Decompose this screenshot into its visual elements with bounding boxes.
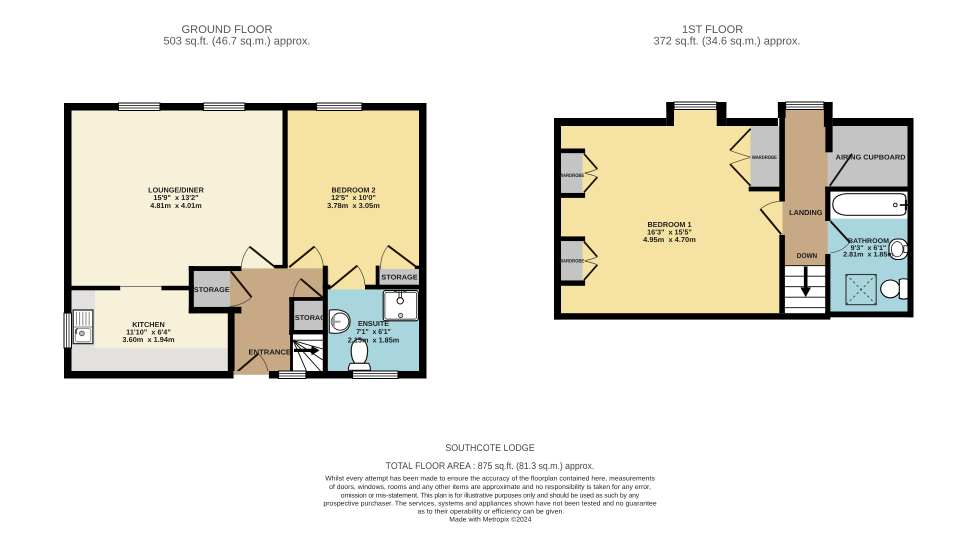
svg-text:AIRING CUPBOARD: AIRING CUPBOARD xyxy=(836,155,906,162)
svg-text:omission or mis-statement. Thi: omission or mis-statement. This plan is … xyxy=(341,492,640,499)
svg-text:LANDING: LANDING xyxy=(789,208,823,217)
svg-text:prospective purchaser. The ser: prospective purchaser. The services, sys… xyxy=(323,501,657,508)
svg-text:4.95m x 4.70m: 4.95m x 4.70m xyxy=(643,235,696,244)
svg-text:DOWN: DOWN xyxy=(797,253,817,260)
svg-text:1ST FLOOR: 1ST FLOOR xyxy=(682,24,743,36)
svg-text:3.78m x 3.05m: 3.78m x 3.05m xyxy=(327,201,380,210)
svg-text:as to their operability or eff: as to their operability or efficiency ca… xyxy=(418,509,565,516)
svg-text:Made with Metropix ©2024: Made with Metropix ©2024 xyxy=(449,516,531,523)
svg-text:WARDROBE: WARDROBE xyxy=(559,173,585,179)
svg-text:WARDROBE: WARDROBE xyxy=(752,155,778,161)
svg-text:WARDROBE: WARDROBE xyxy=(559,259,585,265)
svg-text:of doors, windows, rooms and a: of doors, windows, rooms and any other i… xyxy=(329,484,651,491)
svg-text:Whilst every attempt has been: Whilst every attempt has been made to en… xyxy=(325,476,655,483)
svg-text:2.81m x 1.85m: 2.81m x 1.85m xyxy=(843,252,894,259)
svg-text:503 sq.ft. (46.7 sq.m.) approx: 503 sq.ft. (46.7 sq.m.) approx. xyxy=(164,36,311,48)
svg-text:STORAGE: STORAGE xyxy=(194,287,230,294)
svg-text:TOTAL FLOOR AREA : 875 sq.ft.: TOTAL FLOOR AREA : 875 sq.ft. (81.3 sq.m… xyxy=(386,461,595,472)
svg-text:372 sq.ft. (34.6 sq.m.) approx: 372 sq.ft. (34.6 sq.m.) approx. xyxy=(654,36,801,48)
svg-text:3.60m x 1.94m: 3.60m x 1.94m xyxy=(122,335,174,344)
svg-text:2.15m x 1.85m: 2.15m x 1.85m xyxy=(348,335,400,344)
svg-text:4.81m x 4.01m: 4.81m x 4.01m xyxy=(150,201,201,210)
svg-text:GROUND FLOOR: GROUND FLOOR xyxy=(182,24,273,36)
svg-text:STORAGE: STORAGE xyxy=(381,274,418,281)
svg-text:SOUTHCOTE LODGE: SOUTHCOTE LODGE xyxy=(445,443,534,454)
